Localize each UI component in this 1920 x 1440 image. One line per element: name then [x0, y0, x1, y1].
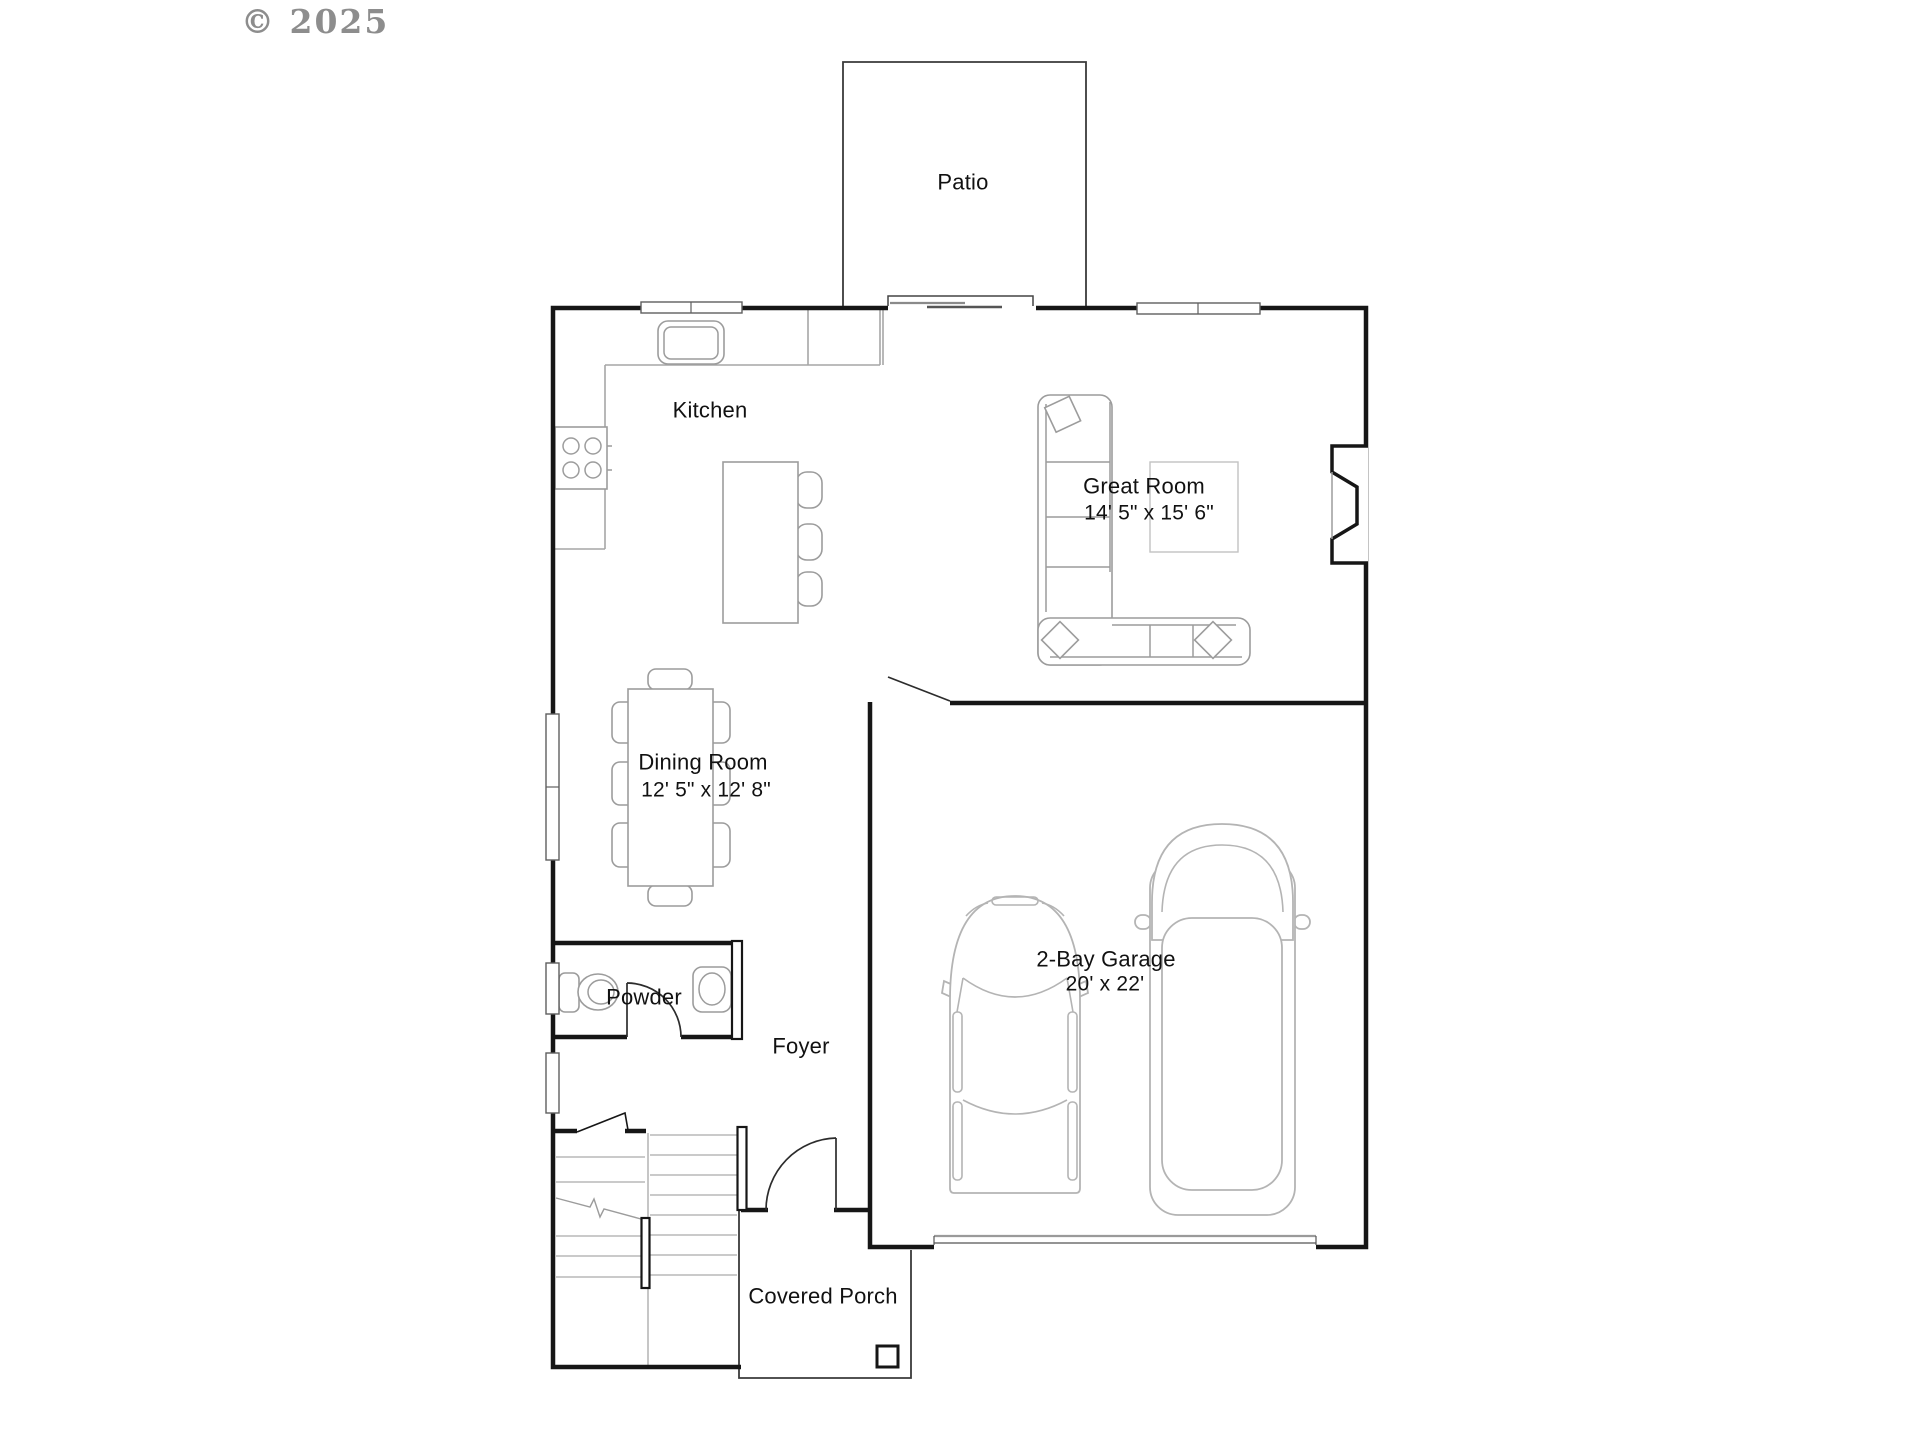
powder-right-wall	[732, 941, 742, 1039]
toilet-icon	[559, 973, 579, 1012]
window	[546, 963, 559, 1014]
floor-plan-page: © 2025 Patio Kitchen Great Room 14' 5" x…	[0, 0, 1920, 1440]
great-room-dimensions: 14' 5" x 15' 6"	[1084, 502, 1214, 525]
kitchen-island	[723, 462, 798, 623]
garage-dimensions: 20' x 22'	[1066, 973, 1145, 996]
foyer-label: Foyer	[772, 1035, 829, 1058]
car-suv-mirror	[1294, 915, 1310, 929]
porch-post	[877, 1346, 898, 1367]
car-sedan-icon	[942, 896, 1088, 1193]
fireplace-icon	[1332, 446, 1368, 563]
staircase	[556, 1113, 737, 1366]
patio-label: Patio	[937, 171, 988, 194]
island-stool	[796, 472, 822, 508]
garage-wall	[870, 702, 934, 1247]
stair-up-notch	[577, 1113, 628, 1132]
car-suv-mirror	[1135, 915, 1151, 929]
garage-entry-door	[888, 677, 950, 701]
island-stool	[796, 524, 822, 560]
kitchen-label: Kitchen	[673, 399, 748, 422]
island-stool	[796, 572, 822, 606]
dining-room-label: Dining Room	[638, 751, 767, 774]
dining-chair	[648, 885, 692, 906]
great-room-label: Great Room	[1083, 475, 1205, 498]
dining-chair	[648, 669, 692, 690]
sliding-door	[888, 296, 1033, 307]
powder-label: Powder	[606, 986, 682, 1009]
stair-break-line	[556, 1198, 641, 1219]
kitchen-island-group	[723, 462, 822, 623]
dining-room-dimensions: 12' 5" x 12' 8"	[641, 779, 771, 802]
stair-stringer-wall	[642, 1218, 650, 1288]
garage-label: 2-Bay Garage	[1036, 948, 1175, 971]
window	[546, 1053, 559, 1113]
covered-porch-label: Covered Porch	[738, 1285, 908, 1308]
garage-door	[934, 1236, 1316, 1245]
garage-cars	[942, 824, 1310, 1215]
front-door-arc	[766, 1138, 836, 1210]
floor-plan-drawing	[0, 0, 1920, 1440]
car-suv-icon	[1135, 824, 1310, 1215]
copyright-watermark: © 2025	[241, 2, 389, 41]
great-room-furniture	[1038, 395, 1250, 665]
fireplace-group	[1332, 446, 1368, 563]
stove-icon	[555, 427, 607, 489]
stair-rail-wall	[738, 1127, 747, 1210]
